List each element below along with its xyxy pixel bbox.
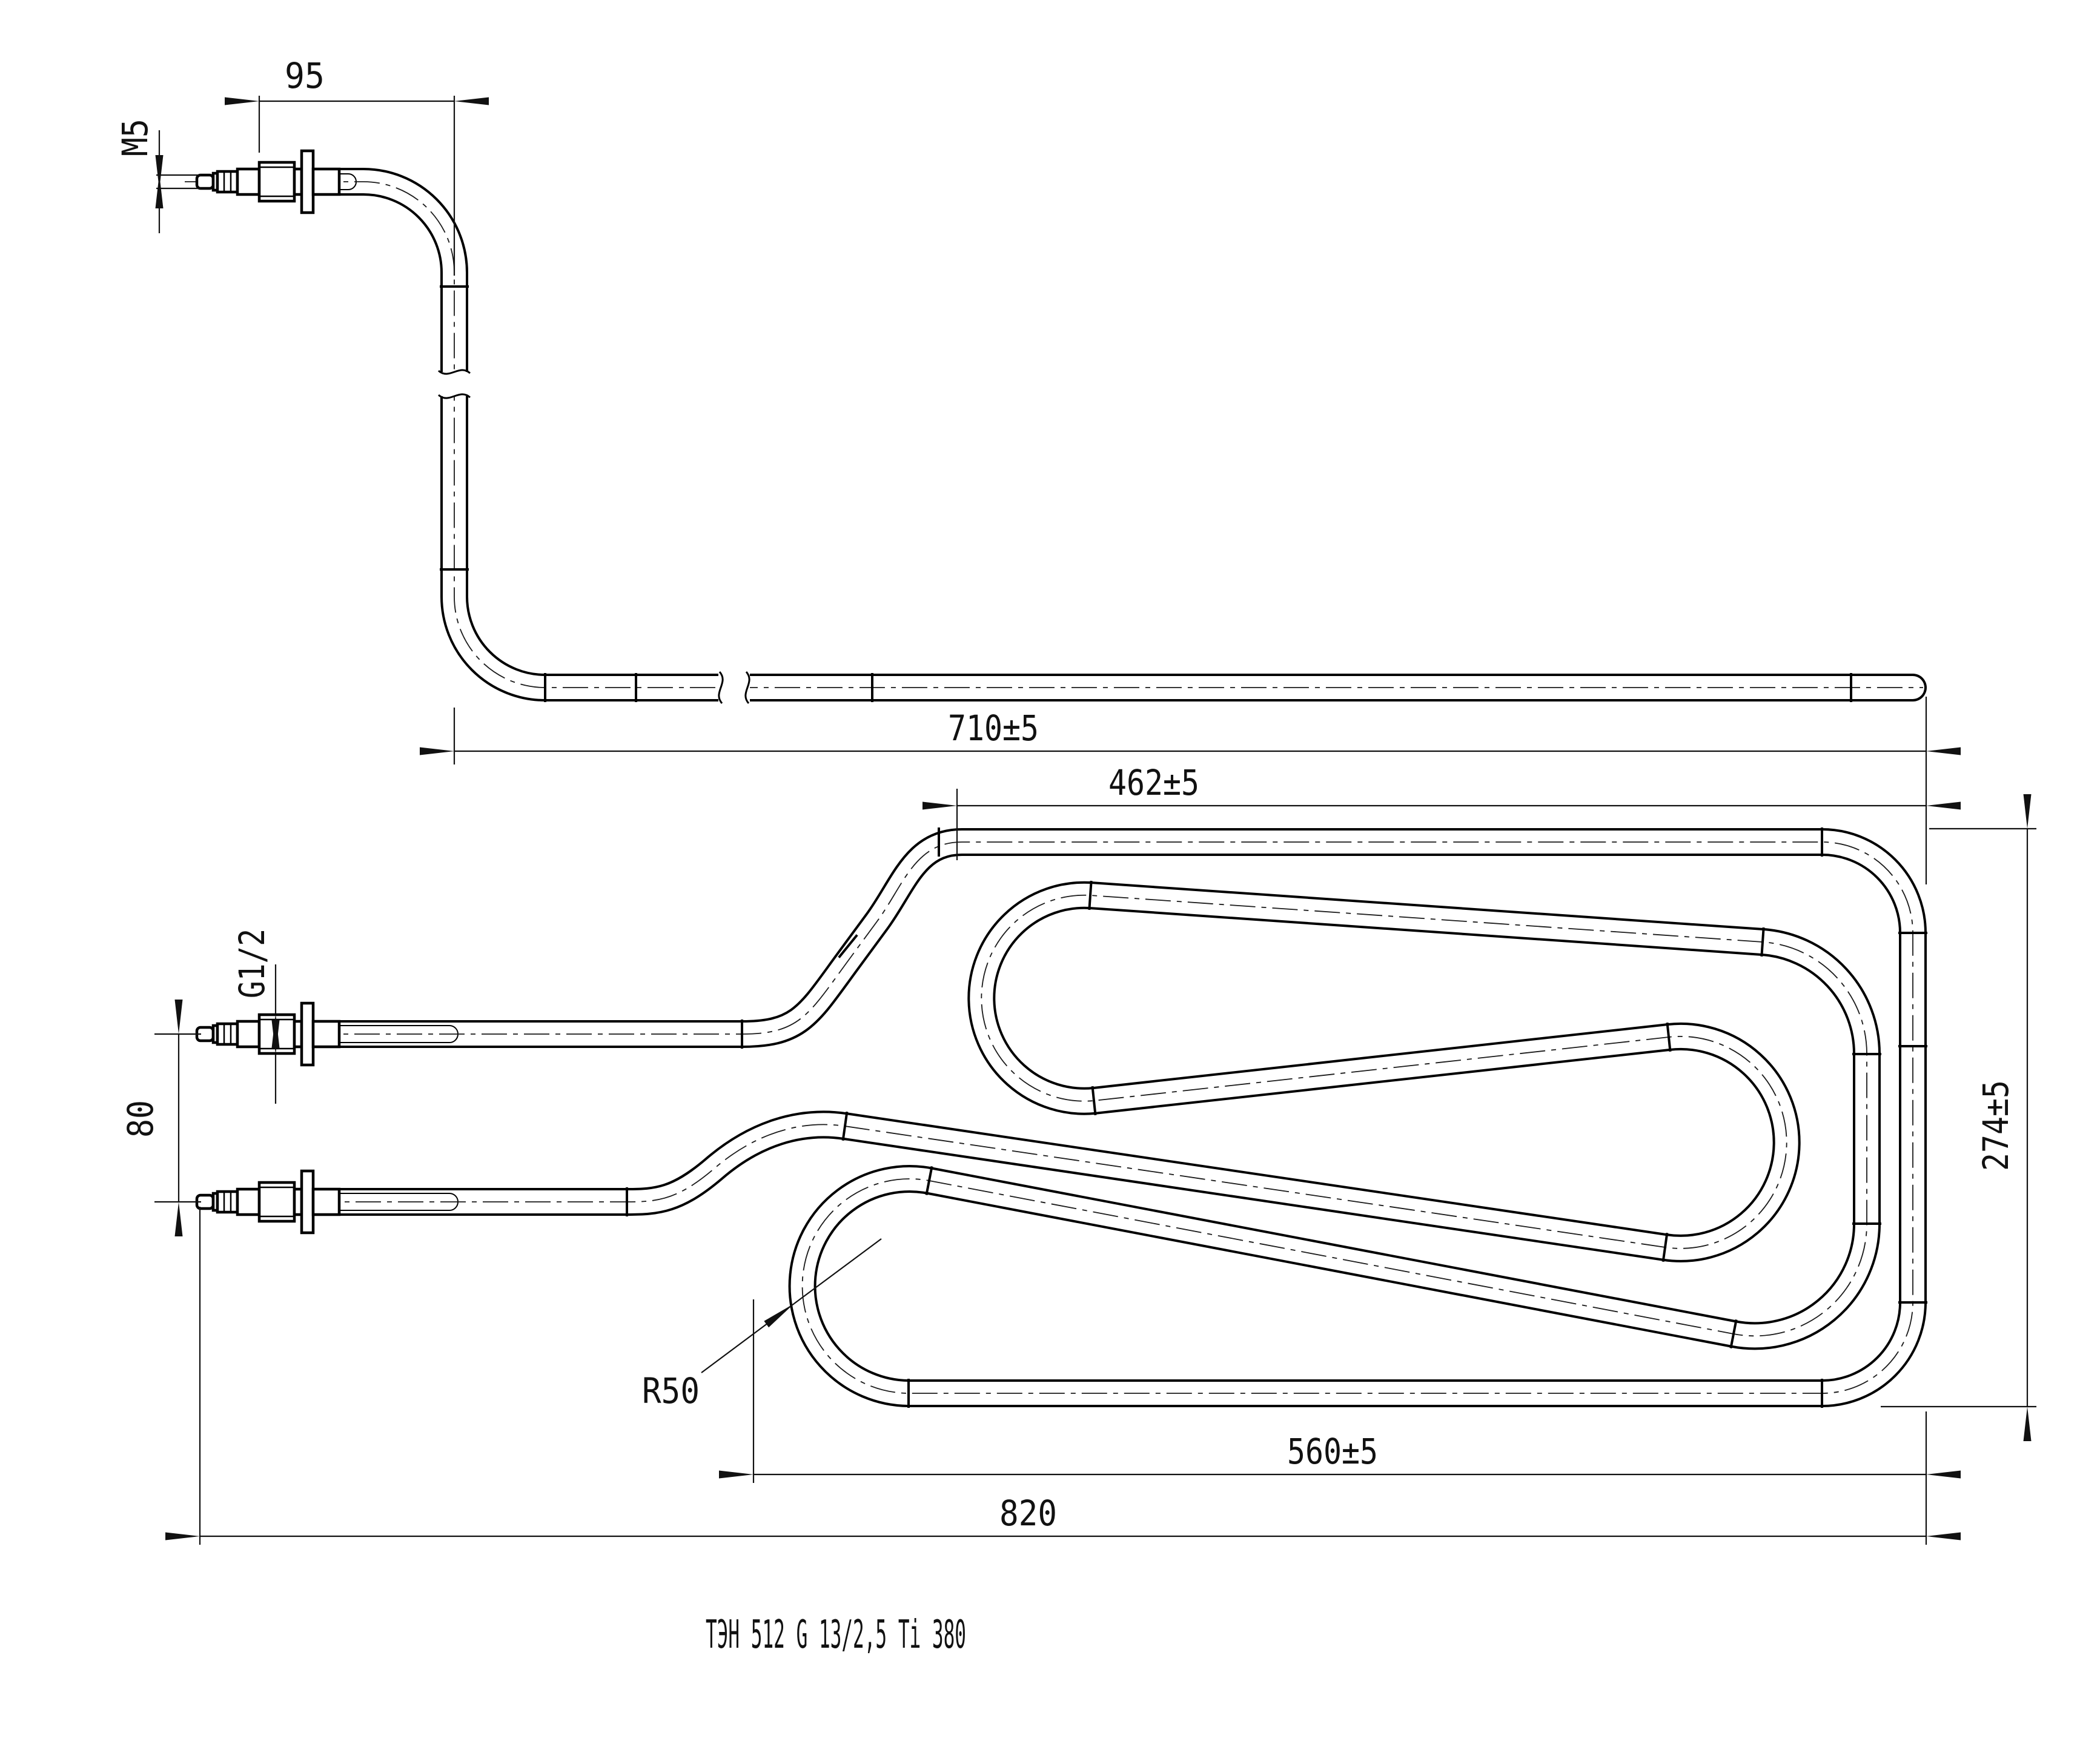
dim-text-462: 462±5 [1108,762,1199,803]
dim-text-g12: G1/2 [231,929,273,998]
plan-view-tube [303,842,1913,1393]
dim-text-274: 274±5 [1975,1080,2016,1171]
dim-text-820: 820 [999,1493,1057,1534]
drawing-title: ТЭН 512 G 13/2,5 Ti 380 [706,1613,966,1657]
terminal-upper [197,1003,339,1065]
dim-text-710: 710±5 [948,708,1039,749]
side-view-tube [303,182,1913,688]
dim-text-r50: R50 [642,1370,700,1411]
drawing-sheet: 95 M5 710±5 462±5 274±5 560±5 820 [0,0,2100,1761]
dimension-80: 80 [120,1034,201,1202]
heating-element-drawing: 95 M5 710±5 462±5 274±5 560±5 820 [0,0,2100,1761]
cold-pin-contours [315,174,458,1210]
terminal-side-view [197,151,339,213]
dim-text-80: 80 [120,1100,161,1138]
dim-text-560: 560±5 [1287,1431,1378,1472]
dim-text-95: 95 [285,55,325,96]
dim-text-m5: M5 [114,119,156,156]
dimension-m5: M5 [114,119,201,233]
terminal-lower [197,1171,339,1233]
